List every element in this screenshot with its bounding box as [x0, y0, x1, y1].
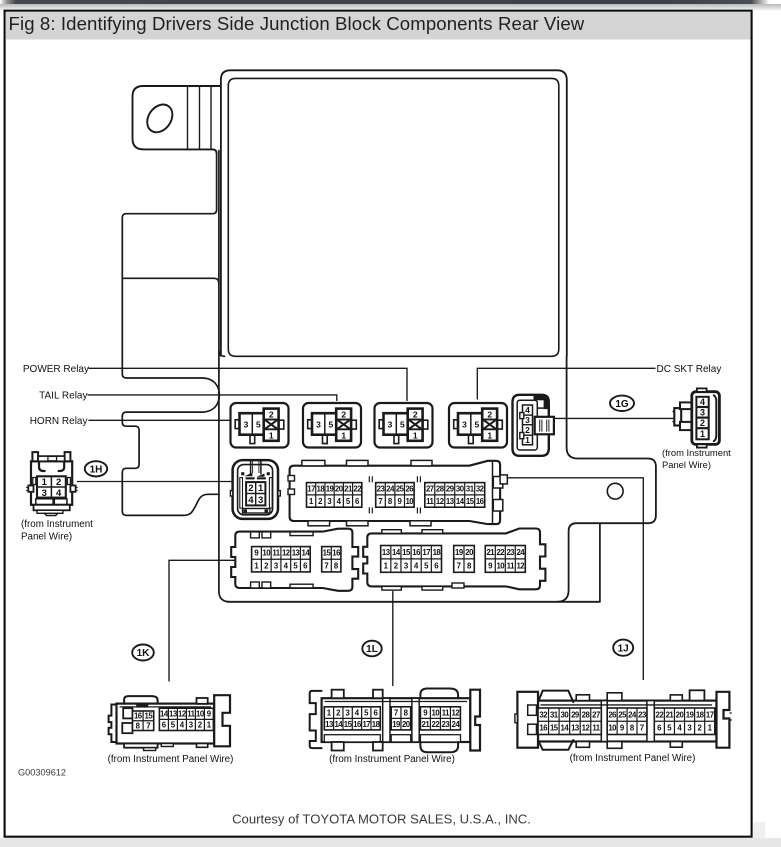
svg-text:5: 5	[667, 724, 672, 733]
svg-text:11: 11	[187, 710, 195, 719]
svg-text:(from Instrument: (from Instrument	[662, 447, 731, 458]
svg-text:11: 11	[592, 724, 600, 733]
svg-text:11: 11	[507, 561, 515, 570]
svg-text:14: 14	[334, 720, 343, 729]
svg-text:12: 12	[516, 561, 525, 570]
svg-text:3: 3	[687, 724, 692, 733]
svg-text:5: 5	[346, 497, 351, 506]
svg-text:2: 2	[264, 561, 269, 570]
svg-text:(from Instrument Panel Wire): (from Instrument Panel Wire)	[329, 754, 455, 765]
svg-text:27: 27	[592, 710, 600, 719]
svg-text:15: 15	[466, 497, 475, 506]
svg-text:3: 3	[42, 488, 47, 499]
svg-text:10: 10	[262, 549, 271, 558]
svg-text:5: 5	[424, 561, 429, 570]
svg-text:1L: 1L	[366, 644, 378, 655]
svg-text:15: 15	[344, 720, 353, 729]
svg-text:HORN Relay: HORN Relay	[30, 416, 88, 427]
svg-text:22: 22	[496, 548, 505, 557]
svg-text:24: 24	[452, 720, 461, 729]
svg-text:10: 10	[432, 708, 441, 717]
svg-text:5: 5	[364, 708, 369, 717]
svg-text:1: 1	[700, 429, 705, 439]
svg-text:12: 12	[178, 710, 187, 719]
svg-text:1: 1	[327, 708, 332, 717]
svg-text:4: 4	[677, 724, 682, 733]
svg-text:11: 11	[442, 708, 450, 717]
svg-text:8: 8	[334, 561, 339, 570]
svg-text:14: 14	[160, 710, 169, 719]
svg-text:10: 10	[608, 724, 617, 733]
svg-text:2: 2	[336, 708, 341, 717]
svg-text:1: 1	[525, 435, 530, 445]
svg-text:1: 1	[269, 430, 274, 440]
svg-text:32: 32	[539, 710, 548, 719]
svg-text:Courtesy of TOYOTA MOTOR SALES: Courtesy of TOYOTA MOTOR SALES, U.S.A., …	[232, 812, 531, 827]
svg-text:13: 13	[169, 710, 178, 719]
svg-text:31: 31	[550, 710, 559, 719]
svg-text:4: 4	[337, 497, 342, 506]
svg-text:(from Instrument: (from Instrument	[21, 519, 93, 530]
svg-text:9: 9	[398, 497, 403, 506]
svg-text:Panel Wire): Panel Wire)	[662, 459, 711, 470]
svg-text:4: 4	[525, 405, 530, 415]
svg-text:2: 2	[56, 477, 61, 488]
svg-text:16: 16	[476, 497, 485, 506]
svg-text:7: 7	[457, 561, 461, 570]
svg-text:27: 27	[426, 485, 434, 494]
svg-text:28: 28	[582, 710, 591, 719]
svg-text:6: 6	[657, 724, 662, 733]
svg-text:19: 19	[326, 485, 335, 494]
svg-text:26: 26	[405, 485, 414, 494]
svg-text:13: 13	[446, 497, 455, 506]
svg-text:12: 12	[436, 497, 445, 506]
svg-text:G00309612: G00309612	[18, 767, 66, 777]
svg-text:15: 15	[323, 549, 332, 558]
svg-text:2: 2	[697, 724, 702, 733]
svg-text:29: 29	[446, 485, 455, 494]
svg-text:13: 13	[325, 720, 334, 729]
svg-text:12: 12	[282, 549, 291, 558]
svg-text:1: 1	[341, 430, 346, 440]
svg-text:14: 14	[301, 549, 310, 558]
svg-text:31: 31	[466, 485, 475, 494]
svg-text:15: 15	[145, 712, 154, 721]
svg-text:(from Instrument Panel Wire): (from Instrument Panel Wire)	[570, 753, 696, 764]
svg-text:9: 9	[423, 708, 428, 717]
svg-text:1H: 1H	[90, 464, 103, 475]
svg-text:18: 18	[372, 720, 381, 729]
svg-text:26: 26	[608, 710, 617, 719]
svg-text:8: 8	[630, 724, 635, 733]
svg-text:15: 15	[402, 548, 411, 557]
svg-text:22: 22	[432, 720, 441, 729]
svg-text:2: 2	[248, 483, 253, 494]
svg-text:8: 8	[136, 721, 141, 730]
svg-text:7: 7	[640, 724, 644, 733]
svg-text:8: 8	[388, 497, 393, 506]
svg-text:5: 5	[171, 721, 176, 730]
svg-text:23: 23	[506, 548, 515, 557]
svg-text:2: 2	[269, 410, 274, 420]
svg-text:17: 17	[362, 720, 370, 729]
svg-text:30: 30	[561, 710, 570, 719]
svg-text:21: 21	[486, 548, 495, 557]
svg-text:7: 7	[378, 497, 382, 506]
svg-text:17: 17	[706, 710, 714, 719]
svg-text:18: 18	[316, 485, 325, 494]
svg-text:1: 1	[708, 724, 713, 733]
svg-text:1J: 1J	[618, 643, 629, 654]
svg-text:9: 9	[620, 724, 625, 733]
svg-text:20: 20	[335, 485, 344, 494]
svg-text:1G: 1G	[615, 399, 629, 410]
svg-text:5: 5	[256, 419, 261, 429]
svg-text:11: 11	[272, 549, 280, 558]
svg-text:3: 3	[388, 419, 393, 429]
svg-text:3: 3	[404, 561, 409, 570]
svg-text:6: 6	[434, 561, 439, 570]
svg-text:18: 18	[433, 548, 442, 557]
svg-text:3: 3	[700, 408, 705, 418]
svg-text:16: 16	[332, 549, 341, 558]
svg-text:25: 25	[618, 710, 627, 719]
svg-text:3: 3	[274, 561, 279, 570]
svg-text:14: 14	[392, 548, 401, 557]
svg-text:20: 20	[676, 710, 685, 719]
svg-text:10: 10	[405, 497, 414, 506]
svg-text:24: 24	[386, 485, 395, 494]
svg-text:3: 3	[345, 708, 350, 717]
svg-text:6: 6	[373, 708, 378, 717]
svg-text:7: 7	[324, 561, 328, 570]
svg-text:1: 1	[309, 497, 314, 506]
svg-text:Fig 8: Identifying Drivers Sid: Fig 8: Identifying Drivers Side Junction…	[9, 13, 585, 34]
svg-text:2: 2	[341, 410, 346, 420]
svg-text:2: 2	[700, 418, 705, 428]
svg-text:4: 4	[248, 495, 254, 506]
svg-text:16: 16	[134, 712, 143, 721]
svg-text:4: 4	[284, 561, 289, 570]
svg-text:13: 13	[571, 724, 580, 733]
svg-text:Panel Wire): Panel Wire)	[21, 532, 72, 543]
svg-text:10: 10	[496, 561, 505, 570]
svg-text:14: 14	[561, 724, 570, 733]
svg-text:13: 13	[382, 548, 391, 557]
svg-text:7: 7	[146, 721, 150, 730]
svg-text:16: 16	[412, 548, 421, 557]
svg-text:2: 2	[198, 721, 203, 730]
svg-text:23: 23	[377, 485, 386, 494]
svg-text:19: 19	[392, 720, 401, 729]
svg-text:9: 9	[254, 549, 259, 558]
svg-text:12: 12	[582, 724, 591, 733]
svg-text:1K: 1K	[137, 648, 151, 659]
svg-text:6: 6	[162, 721, 167, 730]
svg-text:25: 25	[396, 485, 405, 494]
svg-text:8: 8	[404, 708, 409, 717]
svg-text:TAIL Relay: TAIL Relay	[39, 390, 87, 401]
svg-text:30: 30	[456, 485, 465, 494]
svg-text:5: 5	[400, 419, 405, 429]
svg-text:1: 1	[207, 721, 212, 730]
svg-text:3: 3	[462, 419, 467, 429]
svg-text:15: 15	[550, 724, 559, 733]
svg-text:32: 32	[476, 485, 485, 494]
svg-text:9: 9	[207, 710, 212, 719]
svg-text:3: 3	[327, 497, 332, 506]
svg-text:5: 5	[475, 419, 480, 429]
svg-text:3: 3	[244, 419, 249, 429]
svg-text:13: 13	[292, 549, 301, 558]
svg-text:21: 21	[422, 720, 431, 729]
svg-text:1: 1	[487, 430, 492, 440]
svg-text:28: 28	[436, 485, 445, 494]
svg-text:4: 4	[414, 561, 419, 570]
svg-text:3: 3	[316, 419, 321, 429]
svg-text:10: 10	[196, 710, 205, 719]
svg-text:1: 1	[384, 561, 389, 570]
svg-text:12: 12	[452, 708, 461, 717]
svg-text:9: 9	[488, 561, 493, 570]
svg-text:16: 16	[539, 724, 548, 733]
svg-text:6: 6	[303, 561, 308, 570]
svg-text:(from Instrument Panel Wire): (from Instrument Panel Wire)	[108, 754, 234, 765]
svg-text:8: 8	[467, 561, 472, 570]
svg-text:22: 22	[655, 710, 664, 719]
svg-text:21: 21	[344, 485, 353, 494]
svg-text:3: 3	[525, 415, 530, 425]
svg-text:17: 17	[307, 485, 315, 494]
svg-text:2: 2	[394, 561, 399, 570]
svg-text:5: 5	[293, 561, 298, 570]
svg-text:22: 22	[353, 485, 362, 494]
svg-text:3: 3	[258, 495, 263, 506]
svg-text:DC SKT Relay: DC SKT Relay	[657, 364, 722, 375]
svg-text:1: 1	[42, 477, 48, 488]
svg-text:1: 1	[254, 561, 259, 570]
svg-text:18: 18	[696, 710, 705, 719]
svg-text:24: 24	[516, 548, 525, 557]
svg-text:14: 14	[456, 497, 465, 506]
svg-text:11: 11	[426, 497, 434, 506]
svg-text:7: 7	[394, 708, 398, 717]
svg-text:POWER Relay: POWER Relay	[23, 364, 89, 375]
svg-text:1: 1	[413, 430, 418, 440]
svg-text:24: 24	[628, 710, 637, 719]
svg-text:4: 4	[56, 488, 62, 499]
svg-text:2: 2	[487, 410, 492, 420]
svg-text:20: 20	[402, 720, 411, 729]
svg-text:5: 5	[329, 419, 334, 429]
svg-text:17: 17	[422, 548, 430, 557]
svg-text:23: 23	[442, 720, 451, 729]
svg-text:16: 16	[353, 720, 362, 729]
svg-text:20: 20	[465, 548, 474, 557]
svg-text:4: 4	[180, 721, 185, 730]
svg-text:6: 6	[355, 497, 360, 506]
svg-text:4: 4	[700, 397, 705, 407]
svg-text:2: 2	[318, 497, 323, 506]
svg-text:2: 2	[413, 410, 418, 420]
svg-text:1: 1	[258, 483, 264, 494]
svg-text:29: 29	[571, 710, 580, 719]
svg-text:3: 3	[189, 721, 194, 730]
svg-text:4: 4	[355, 708, 360, 717]
svg-text:19: 19	[455, 548, 464, 557]
svg-text:19: 19	[686, 710, 695, 719]
svg-text:23: 23	[638, 710, 647, 719]
svg-text:21: 21	[666, 710, 675, 719]
svg-text:2: 2	[525, 425, 530, 435]
